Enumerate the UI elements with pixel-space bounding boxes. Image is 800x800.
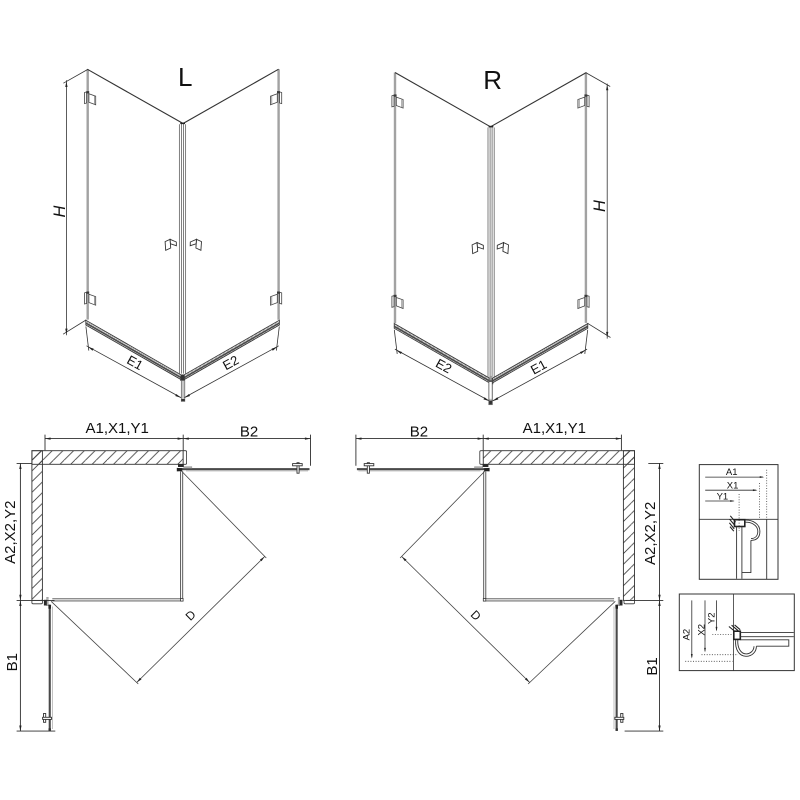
svg-text:A1: A1 xyxy=(726,467,738,478)
svg-text:H: H xyxy=(51,205,69,217)
svg-text:A1,X1,Y1: A1,X1,Y1 xyxy=(86,420,149,437)
svg-text:L: L xyxy=(178,62,192,92)
svg-text:A1,X1,Y1: A1,X1,Y1 xyxy=(523,420,586,437)
svg-text:B1: B1 xyxy=(4,653,21,671)
svg-text:B2: B2 xyxy=(240,424,258,441)
svg-text:Y2: Y2 xyxy=(707,612,718,624)
svg-text:B2: B2 xyxy=(410,424,428,441)
svg-text:B1: B1 xyxy=(644,657,661,675)
svg-text:H: H xyxy=(591,200,609,212)
svg-text:D: D xyxy=(468,607,484,623)
svg-text:A2,X2,Y2: A2,X2,Y2 xyxy=(642,502,659,565)
svg-text:R: R xyxy=(483,65,502,95)
svg-text:A2: A2 xyxy=(682,629,693,641)
svg-text:D: D xyxy=(183,607,199,623)
svg-text:X2: X2 xyxy=(697,624,708,636)
svg-text:A2,X2,Y2: A2,X2,Y2 xyxy=(2,501,19,564)
